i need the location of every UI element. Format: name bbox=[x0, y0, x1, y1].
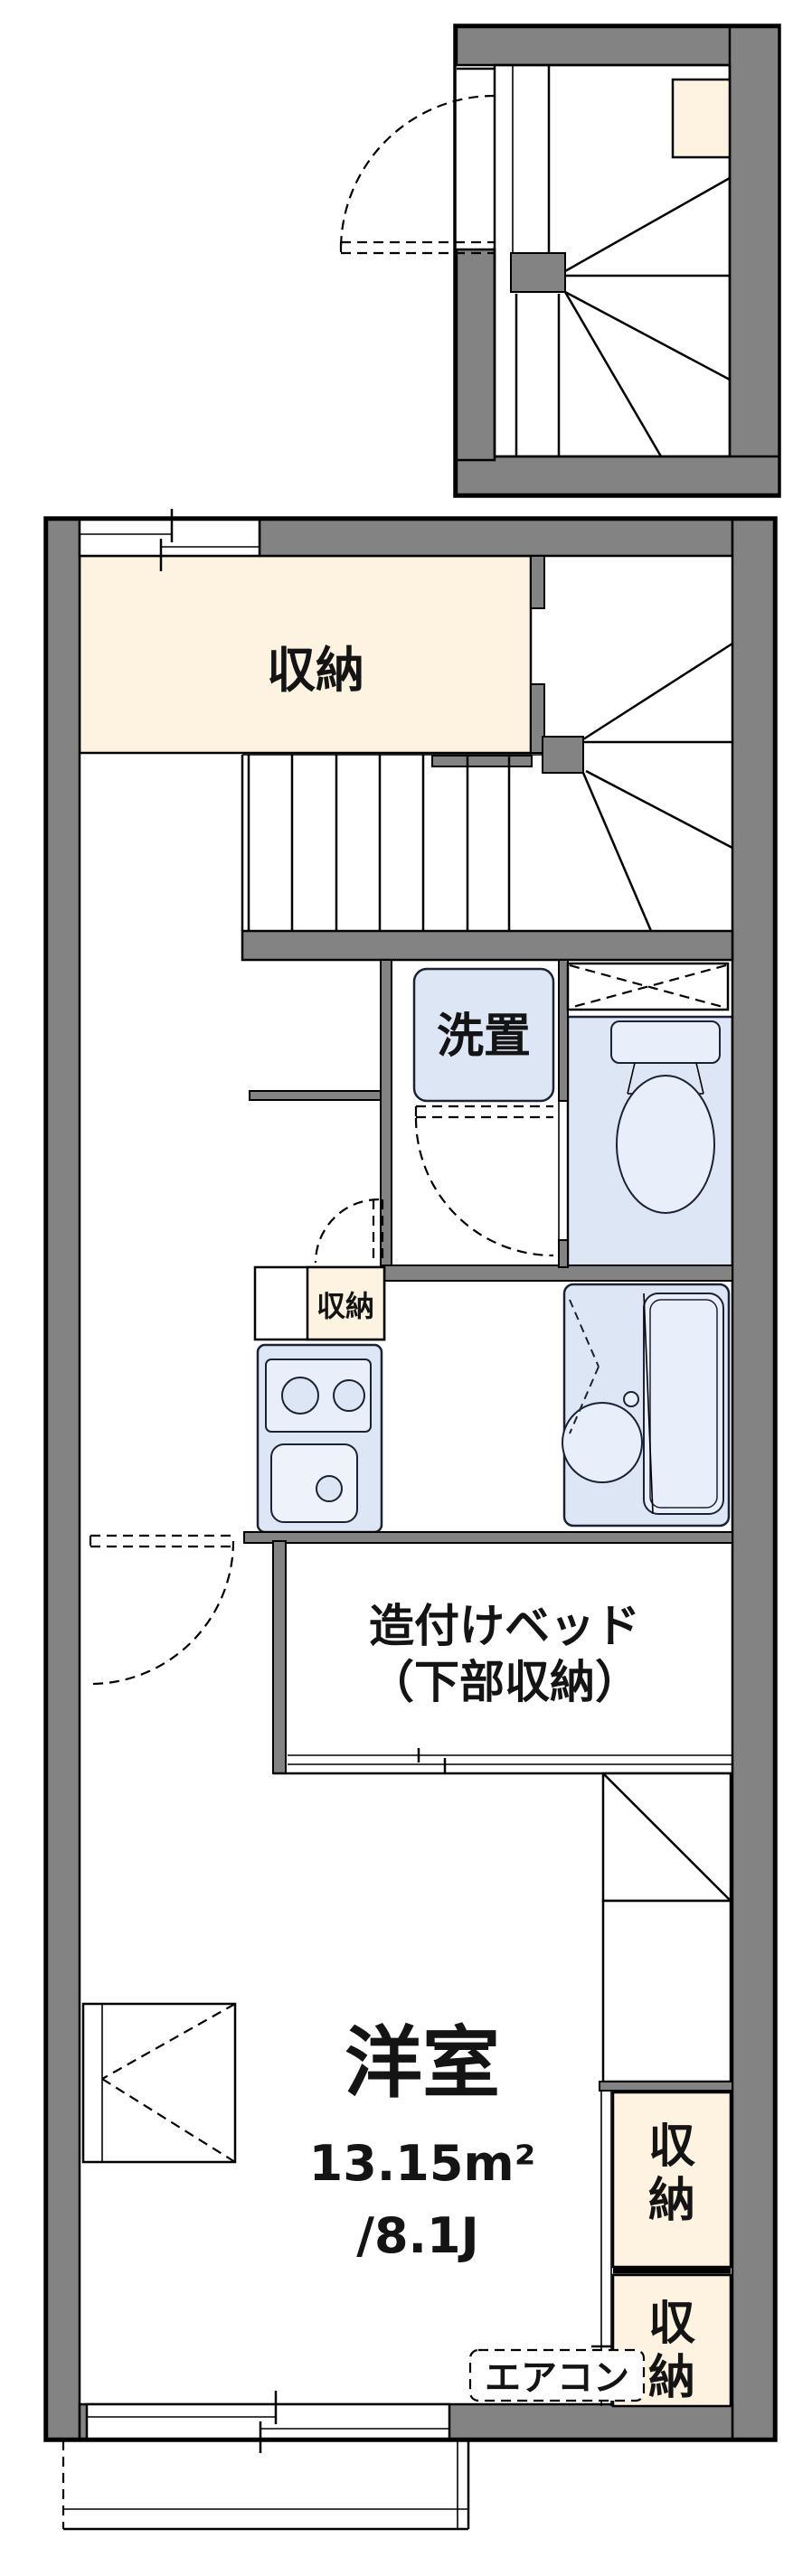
bed-top-wall bbox=[244, 1532, 732, 1543]
storage-stair-wall-upper bbox=[531, 556, 544, 608]
entry-stair-block bbox=[341, 25, 779, 496]
toilet-corner-stub bbox=[559, 1240, 568, 1267]
toilet-tank bbox=[611, 1021, 720, 1063]
wall-right bbox=[732, 520, 774, 2439]
storage-b-char2: 納 bbox=[648, 2352, 695, 2404]
stair-newel-wall bbox=[543, 737, 583, 773]
entry-wall-bottom bbox=[457, 456, 779, 494]
entry-storage-shelf bbox=[673, 80, 730, 157]
storage-a-char2: 納 bbox=[648, 2175, 695, 2227]
room-area-m2: 13.15m² bbox=[309, 2135, 536, 2192]
entry-wall-right bbox=[730, 27, 779, 494]
kitchen-sink bbox=[271, 1444, 357, 1522]
stove-burner-right bbox=[334, 1380, 364, 1411]
washroom-toilet-wall bbox=[559, 960, 568, 1101]
entrance-door-arc bbox=[341, 96, 495, 249]
aircon-label: エアコン bbox=[485, 2358, 629, 2398]
window-bottom bbox=[87, 2391, 449, 2453]
washroom-bath-wall bbox=[381, 1265, 732, 1281]
washroom-door-arc bbox=[416, 1118, 553, 1255]
kitchen-storage-label: 収納 bbox=[316, 1290, 374, 1322]
storage-a-char1: 収 bbox=[648, 2120, 695, 2173]
laundry-space: 洗置 bbox=[414, 969, 553, 1101]
bath-washing-area bbox=[562, 1403, 642, 1482]
side-cabinet-box bbox=[83, 2004, 235, 2162]
room-name-label: 洋室 bbox=[345, 2020, 500, 2107]
room-area-jo: /8.1J bbox=[356, 2207, 478, 2264]
entry-wall-left bbox=[457, 249, 495, 460]
bath-drain bbox=[624, 1392, 638, 1406]
wall-top bbox=[260, 520, 732, 556]
floor-plan-page: 洗置 bbox=[0, 0, 812, 2576]
storage-room-label: 収納 bbox=[267, 644, 364, 698]
sink-drain bbox=[316, 1476, 342, 1501]
toilet-bowl bbox=[617, 1076, 714, 1213]
kitchen-storage: 収納 bbox=[255, 1267, 384, 1340]
bed-label-line1: 造付けベッド bbox=[369, 1601, 640, 1651]
shelf-box-plain bbox=[603, 1901, 731, 2082]
hallway-door-arc bbox=[316, 1199, 379, 1263]
storage-b-char1: 収 bbox=[648, 2298, 695, 2350]
built-in-bed-area: 造付けベッド （下部収納） bbox=[273, 1601, 732, 1773]
entry-stair-newel-wall bbox=[511, 253, 565, 292]
main-unit-block: 洗置 bbox=[45, 509, 776, 2529]
toilet-fixture bbox=[611, 1021, 720, 1213]
floor-plan-svg: 洗置 bbox=[0, 0, 812, 2576]
right-storage-column: 収 納 収 納 bbox=[591, 1773, 732, 2406]
bathtub bbox=[644, 1293, 723, 1514]
stair-wall-stub bbox=[432, 756, 532, 766]
aircon-unit: エアコン bbox=[470, 2350, 644, 2401]
entrance-door bbox=[341, 69, 495, 253]
overhead-cupboard bbox=[568, 964, 728, 1010]
western-room: 洋室 13.15m² /8.1J bbox=[309, 2020, 536, 2264]
kitchen-counter bbox=[258, 1345, 382, 1532]
room-entry-door-arc bbox=[90, 1541, 233, 1684]
bed-left-wall bbox=[273, 1541, 286, 1773]
stair-bottom-wall bbox=[242, 931, 732, 960]
wall-left bbox=[47, 520, 80, 2439]
room-entry-door bbox=[90, 1536, 233, 1684]
stove-burner-left bbox=[282, 1377, 318, 1414]
laundry-label: 洗置 bbox=[437, 1011, 531, 1063]
storage-column-top-wall bbox=[600, 2082, 732, 2091]
balcony bbox=[63, 2439, 468, 2529]
hallway-door bbox=[316, 1199, 382, 1263]
hall-stub-wall bbox=[250, 1091, 381, 1100]
washroom-door bbox=[416, 1106, 553, 1255]
bed-label-line2: （下部収納） bbox=[369, 1657, 640, 1707]
